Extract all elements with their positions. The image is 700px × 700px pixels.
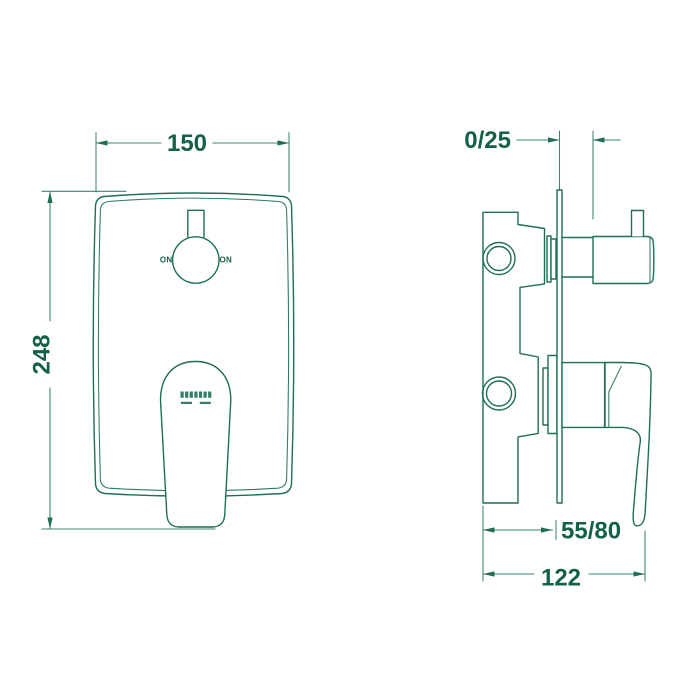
side-view: 0/25 55/80 122	[464, 127, 654, 592]
lever-handle-side	[605, 363, 651, 526]
diverter-shaft	[562, 238, 593, 278]
dimension-text-150: 150	[167, 130, 207, 157]
arrowhead-bottom	[47, 518, 52, 530]
arrowhead-left	[96, 140, 108, 145]
arrowhead-top	[47, 191, 52, 203]
front-view: ON ON 150	[29, 130, 294, 529]
on-label-left: ON	[160, 256, 173, 265]
arrowhead-right	[278, 140, 290, 145]
technical-drawing-page: ON ON 150	[0, 0, 700, 700]
technical-drawing-canvas: ON ON 150	[0, 0, 700, 700]
dimension-plate-to-knob-025: 0/25	[464, 127, 620, 219]
inwall-body	[483, 212, 545, 503]
diverter-knob-stub-side	[632, 211, 644, 237]
lower-flange-ring	[548, 356, 557, 434]
diverter-knob-side	[593, 237, 654, 284]
on-label-right: ON	[220, 256, 233, 265]
dimension-text-248: 248	[29, 334, 56, 374]
arrowhead-right	[634, 571, 646, 576]
arrowhead-left	[548, 137, 560, 142]
diverter-knob-circle	[173, 237, 219, 283]
upper-flange-ring	[551, 239, 556, 279]
dimension-width-150: 150	[96, 130, 289, 192]
arrowhead-left	[483, 571, 495, 576]
dimension-text-0-25: 0/25	[464, 127, 511, 154]
dimension-text-122: 122	[541, 565, 581, 592]
diverter-knob-stub-front	[188, 210, 204, 237]
lever-handle-front	[161, 362, 231, 528]
arrowhead-left	[483, 527, 495, 532]
arrowhead-right	[593, 137, 605, 142]
arrowhead-right	[541, 527, 553, 532]
lower-flange-ring	[543, 368, 548, 425]
mixer-body-side	[562, 363, 605, 428]
wall-plate-edge	[557, 190, 562, 503]
dimension-text-55-80: 55/80	[561, 518, 621, 545]
